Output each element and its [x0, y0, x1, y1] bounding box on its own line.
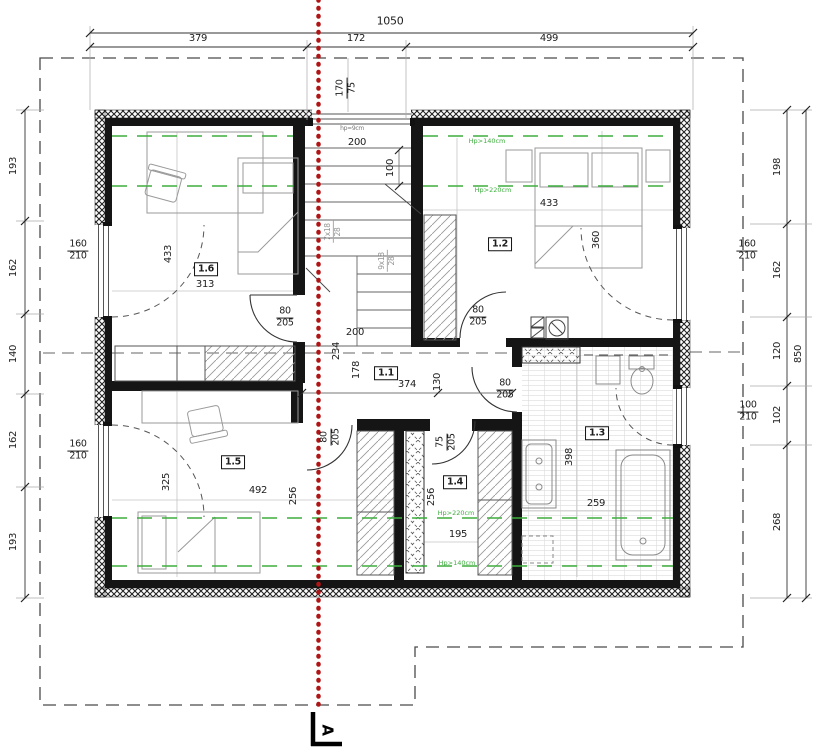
dim-left-162b: 162: [9, 431, 19, 449]
room14-wardrobe: [478, 431, 512, 575]
window-label-right-bottom: 100 210: [737, 401, 758, 424]
room14-depth: 256: [427, 488, 437, 506]
room12-width: 433: [540, 199, 558, 209]
dim-right-120: 120: [773, 342, 783, 360]
window-rt-h: 210: [736, 252, 757, 263]
dim-top-window-h: 75: [348, 77, 359, 98]
stair-flight-upper-tread: 28: [334, 221, 343, 243]
bathroom-tiles: [522, 347, 673, 580]
door12-h: 205: [469, 318, 486, 329]
dim-right-total: 850: [794, 345, 804, 363]
hall-dim-234: 234: [332, 342, 342, 360]
room15-chair: [184, 404, 228, 443]
door15-h: 205: [332, 428, 343, 445]
height-label-south-140: Hp>140cm: [439, 560, 476, 567]
room-label-13: 1.3: [585, 426, 609, 440]
window-left-bottom: [95, 422, 112, 520]
room14-width: 195: [449, 530, 467, 540]
door-label-room14: 75 205: [436, 433, 459, 450]
dim-right-198: 198: [773, 158, 783, 176]
window-lb-h: 210: [67, 452, 88, 463]
hall-dim-178: 178: [352, 361, 362, 379]
window-rb-h: 210: [737, 413, 758, 424]
room16-depth: 433: [164, 245, 174, 263]
room15-desk: [142, 391, 298, 423]
room13-depth: 398: [565, 448, 575, 466]
stair-flight-upper: 7x18 28: [324, 221, 342, 243]
window-label-right-top: 160 210: [736, 240, 757, 263]
room12-depth: 360: [592, 231, 602, 249]
door-label-room12: 80 205: [469, 306, 486, 329]
room15-depth2: 256: [289, 487, 299, 505]
room15-depth: 325: [162, 473, 172, 491]
room-label-hall: 1.1: [374, 366, 398, 380]
door-label-room15: 80 205: [320, 428, 343, 445]
window-label-left-top: 160 210: [67, 240, 88, 263]
hall-dim-374: 374: [398, 380, 416, 390]
door16-h: 205: [276, 319, 293, 330]
room-label-16: 1.6: [194, 262, 218, 276]
room16-bed: [238, 158, 298, 274]
window-lt-h: 210: [67, 252, 88, 263]
height-label-north-220: Hp>220cm: [475, 187, 512, 194]
room14-duct: [406, 431, 424, 573]
room16-width: 313: [196, 280, 214, 290]
dim-left-162a: 162: [9, 259, 19, 277]
dim-top-seg-172: 172: [347, 34, 365, 44]
dim-top-seg-499: 499: [540, 34, 558, 44]
hall-dim-130: 130: [433, 373, 443, 391]
stair-flight-lower: 9x18 28: [378, 250, 396, 272]
window-right-bottom: [673, 385, 690, 448]
door14-h: 205: [448, 433, 459, 450]
floor-plan: 1050 379 172 499 193 162 140 162 193 198…: [0, 0, 828, 750]
hall-dim-200: 200: [346, 328, 364, 338]
dim-right-268: 268: [773, 513, 783, 531]
hall-wardrobe: [115, 346, 295, 381]
room-label-15: 1.5: [221, 455, 245, 469]
room12-washer: [531, 317, 568, 339]
room-label-12: 1.2: [488, 237, 512, 251]
room15-wardrobe: [357, 431, 394, 575]
room16-chair: [142, 164, 187, 204]
window-label-left-bottom: 160 210: [67, 440, 88, 463]
dim-top-total: 1050: [377, 16, 404, 27]
top-window-sill-note: hp=9cm: [340, 126, 364, 132]
dim-left-140: 140: [9, 345, 19, 363]
window-left-top: [95, 222, 112, 320]
room12-wardrobe: [424, 215, 456, 340]
stair-flight-lower-tread: 28: [388, 250, 397, 272]
section-marker-label: A: [320, 724, 335, 735]
dim-top-window: 170 75: [336, 77, 359, 98]
swing-window-left-top: [112, 225, 204, 317]
height-label-south-220: Hp>220cm: [438, 510, 475, 517]
room15-width: 492: [249, 486, 267, 496]
room15-bed: [138, 512, 260, 573]
dim-right-162: 162: [773, 261, 783, 279]
room13-width: 259: [587, 499, 605, 509]
stair-entry: 100: [386, 159, 396, 177]
stair-width: 200: [348, 138, 366, 148]
door-label-room13: 80 205: [496, 379, 513, 402]
dim-left-193b: 193: [9, 533, 19, 551]
room-label-14: 1.4: [443, 475, 467, 489]
dim-right-102: 102: [773, 406, 783, 424]
stairs: [305, 148, 421, 346]
dim-left-193a: 193: [9, 157, 19, 175]
door-label-room16: 80 205: [276, 307, 293, 330]
floor-plan-drawing: [0, 0, 828, 750]
dim-top-seg-379: 379: [189, 34, 207, 44]
bathroom-duct: [522, 347, 580, 363]
window-right-top: [673, 225, 690, 323]
height-label-north-140: Hp>140cm: [469, 138, 506, 145]
door13-h: 205: [496, 391, 513, 402]
window-top: [308, 110, 415, 126]
